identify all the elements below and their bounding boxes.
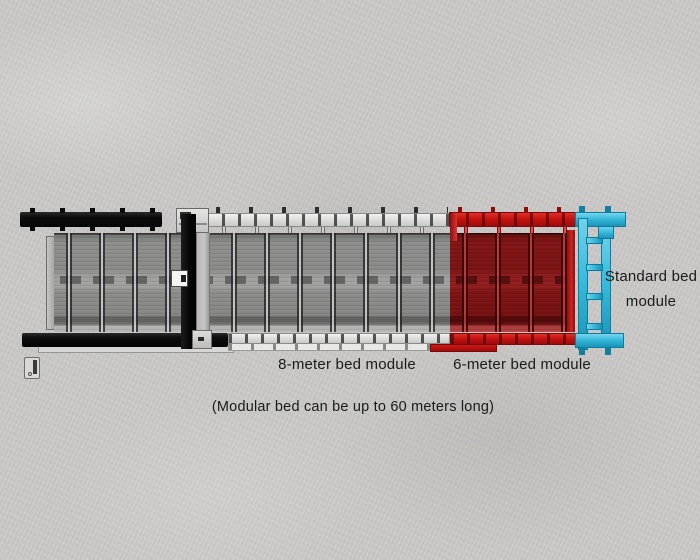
top-rail-bolts-gray [216, 207, 448, 213]
top-rail-black [20, 212, 162, 227]
gantry-column-shadow-strip [196, 233, 210, 331]
bed-6m-ribs [450, 233, 575, 332]
bottom-rail-red-ledge [430, 344, 497, 352]
top-rail-bolts-black-lower [30, 226, 156, 231]
gantry-foot-box [192, 330, 212, 349]
top-rail-bolts-black [30, 208, 156, 213]
sensor-dot [181, 275, 186, 282]
top-rail-bolts-red [458, 207, 576, 213]
fixture-ring [28, 372, 32, 376]
caption-modular-bed-length: (Modular bed can be up to 60 meters long… [183, 399, 523, 415]
bed-section-6m [450, 233, 575, 332]
label-standard-bed-module: Standard bed module [600, 264, 700, 314]
red-rail-start-post [450, 214, 457, 241]
bottom-rail-bolts-cyan [579, 348, 615, 355]
modular-bed-diagram: Standard bed module 8-meter bed module 6… [0, 0, 700, 560]
top-rail-red [449, 212, 579, 227]
label-6-meter-bed-module: 6-meter bed module [437, 356, 607, 373]
bottom-rail-cyan [575, 333, 624, 348]
standard-module-top-bracket [598, 226, 614, 239]
top-rail-gray [205, 213, 451, 227]
column-sensor-box [171, 270, 188, 287]
bed-section-8m [54, 233, 450, 332]
floor-fixture [24, 357, 40, 379]
bottom-rail-gray [228, 333, 450, 344]
bed-6m-end-frame [567, 230, 575, 332]
top-rail-bolts-cyan [579, 206, 617, 213]
foot-dot [198, 337, 204, 341]
bed-8m-ribs [54, 233, 450, 332]
fixture-bar [33, 360, 37, 374]
standard-module-rung-4 [586, 323, 603, 330]
label-8-meter-bed-module: 8-meter bed module [262, 356, 432, 373]
